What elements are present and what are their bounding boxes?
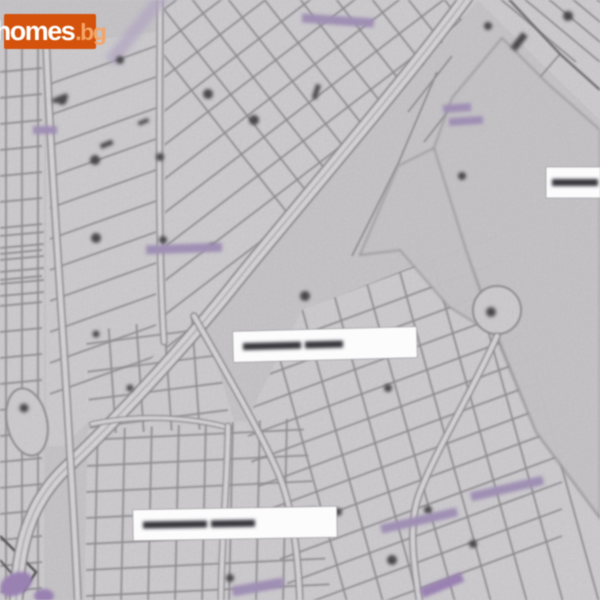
road-label-center (233, 327, 418, 363)
road-label-right-edge (546, 167, 600, 198)
map-screenshot: homes.bg (0, 0, 600, 600)
logo-tld-text: .bg (75, 15, 105, 50)
road-label-bottom (133, 506, 338, 541)
homes-bg-logo: homes.bg (4, 14, 96, 49)
logo-brand-text: homes (0, 14, 74, 49)
cadastral-map-image (0, 0, 600, 600)
map-canvas (0, 0, 600, 600)
